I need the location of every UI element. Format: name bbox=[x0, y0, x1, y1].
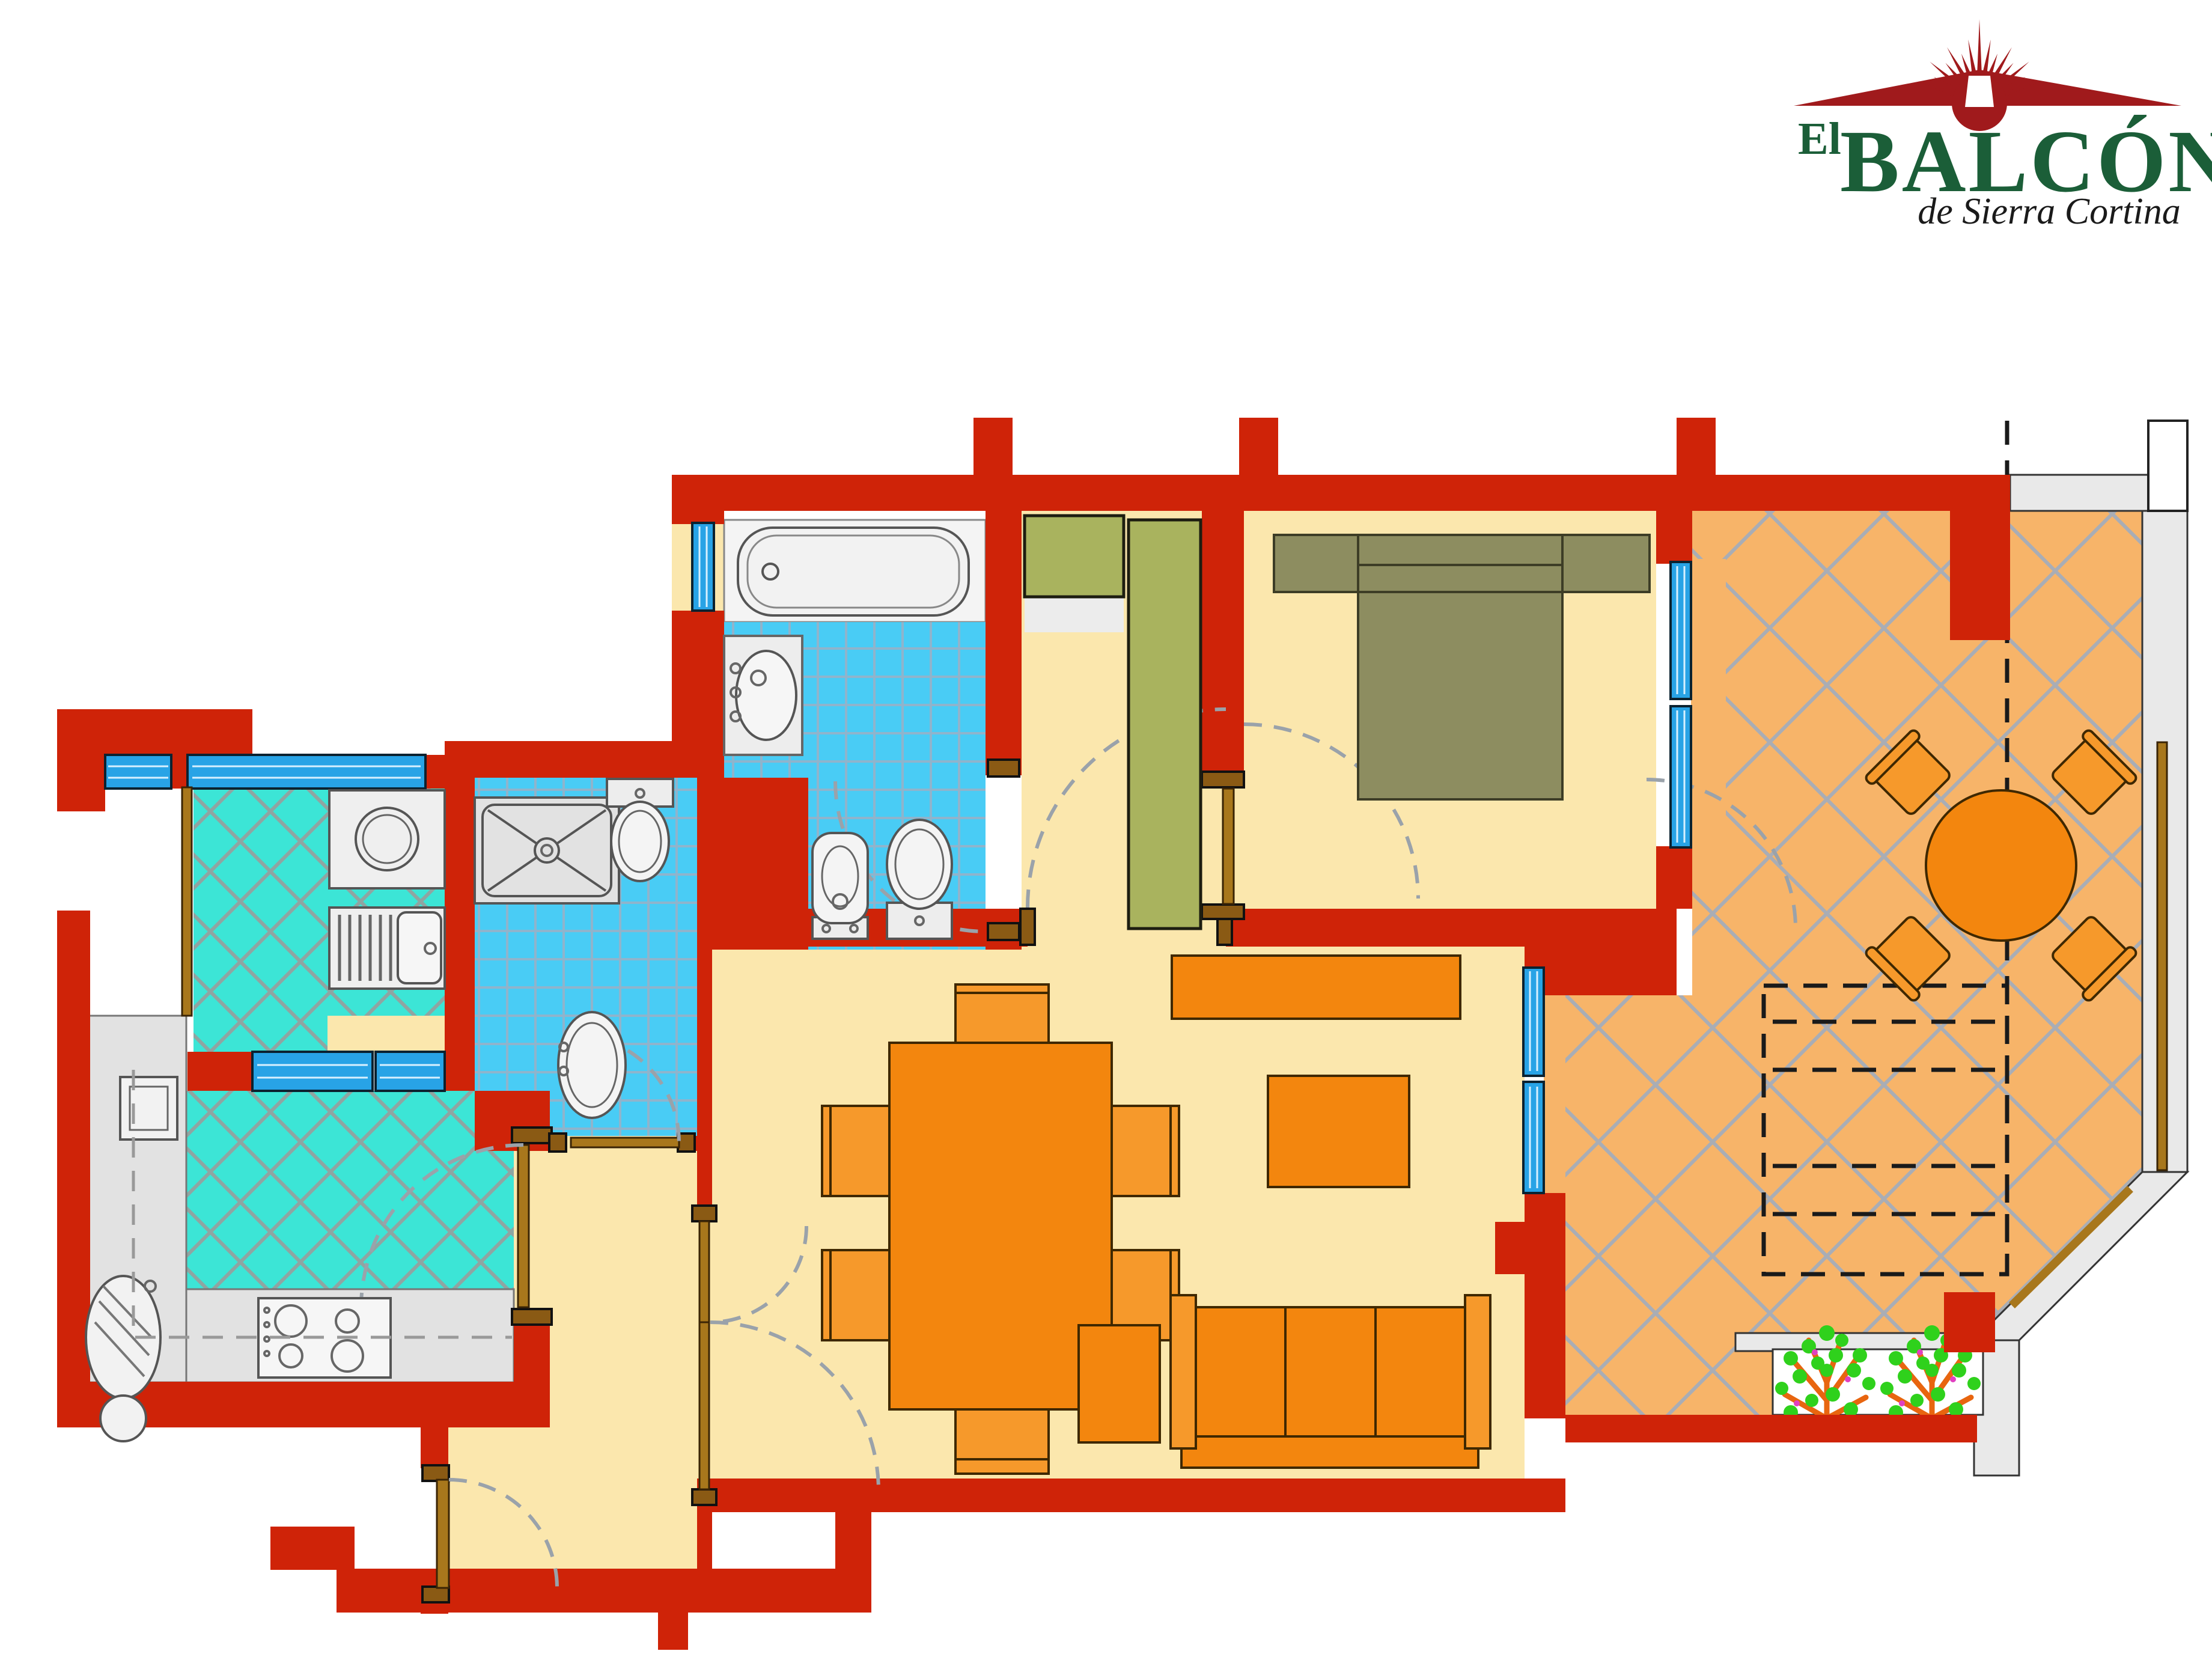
terrace-rail-top bbox=[2010, 475, 2148, 511]
shower-tray-icon bbox=[475, 798, 619, 903]
laundry-strip bbox=[328, 1016, 445, 1053]
water-heater-icon bbox=[120, 1077, 177, 1140]
nightstand bbox=[1274, 535, 1358, 592]
tall-wardrobe-icon bbox=[1129, 520, 1201, 929]
bathtub-icon bbox=[738, 528, 969, 615]
sofa-seats bbox=[1196, 1307, 1465, 1436]
logo-el-text: El bbox=[1798, 114, 1841, 164]
headboard bbox=[1358, 535, 1562, 565]
pilaster bbox=[1677, 418, 1716, 477]
hall-floor-west bbox=[448, 1427, 550, 1572]
wardrobe-shelf bbox=[1025, 595, 1124, 632]
logo-tagline-text: de Sierra Cortina bbox=[1918, 191, 2180, 232]
sofa-icon bbox=[1171, 1295, 1490, 1468]
washing-machine-icon bbox=[329, 790, 445, 888]
sofa-armrest bbox=[1465, 1295, 1490, 1448]
sideboard bbox=[1172, 956, 1460, 1019]
rail-wood-strip bbox=[2157, 742, 2167, 1170]
entry-step bbox=[270, 1527, 355, 1570]
terrace-column bbox=[2148, 421, 2187, 511]
wardrobe-icon bbox=[1025, 516, 1124, 597]
hall-floor bbox=[550, 1151, 697, 1572]
pouf bbox=[1079, 1325, 1160, 1442]
sofa-armrest bbox=[1171, 1295, 1196, 1448]
logo-tower-gap bbox=[1965, 76, 1994, 107]
vanity-sink-icon bbox=[724, 636, 802, 755]
bed-body bbox=[1358, 565, 1562, 799]
terrace-round-table bbox=[1926, 790, 2076, 941]
sofa-back bbox=[1181, 1436, 1478, 1468]
bathroom-window-icon bbox=[692, 523, 714, 611]
toilet-icon bbox=[887, 820, 952, 939]
coffee-table bbox=[1268, 1076, 1409, 1187]
living-window-sill bbox=[1544, 965, 1565, 1196]
kitchen-tiles bbox=[186, 1091, 514, 1289]
pilaster bbox=[973, 418, 1013, 477]
laundry-door-leaf bbox=[182, 787, 192, 1016]
laundry-tiles-2 bbox=[193, 1016, 328, 1053]
drainboard-sink-icon bbox=[329, 908, 445, 989]
bedroom-window-sill bbox=[1691, 559, 1726, 850]
nightstand bbox=[1562, 535, 1650, 592]
floor-plan-canvas: El BALCÓN de Sierra Cortina bbox=[0, 0, 2212, 1654]
bidet-icon bbox=[812, 833, 868, 939]
toilet-icon bbox=[607, 779, 673, 881]
floor-plan-page: El BALCÓN de Sierra Cortina bbox=[0, 0, 2212, 1654]
pedestal-sink-icon bbox=[558, 1012, 626, 1118]
pilaster bbox=[1239, 418, 1278, 477]
